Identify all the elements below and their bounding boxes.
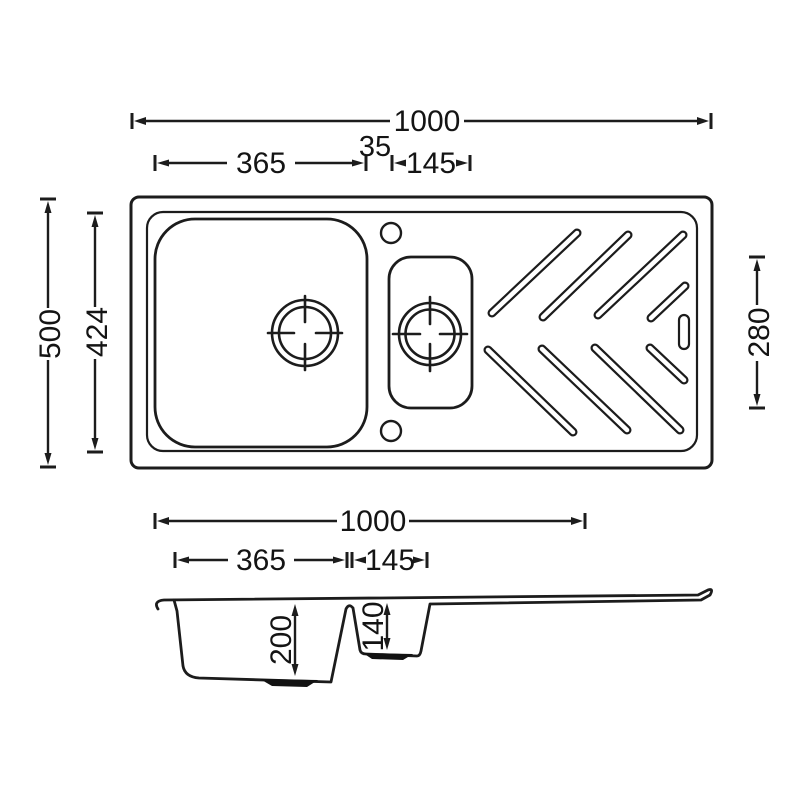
- dim-section-half-bowl-width: 145: [352, 544, 427, 577]
- dim-label-section-200: 200: [265, 615, 298, 665]
- dim-label-plan-500: 500: [34, 309, 67, 359]
- half-bowl-drain-recess: [363, 653, 413, 660]
- dim-plan-main-bowl-width: 365: [155, 147, 366, 180]
- technical-drawing-page: 1000 365 35 145 500 424: [0, 0, 800, 800]
- sink-drawing-canvas: 1000 365 35 145 500 424: [0, 0, 800, 800]
- dim-label-section-365: 365: [236, 544, 286, 577]
- dim-label-plan-424: 424: [81, 307, 114, 357]
- tap-hole-bottom: [381, 421, 401, 441]
- overflow-slot: [679, 315, 689, 349]
- bowls-profile: [174, 600, 430, 682]
- main-bowl-drain-symbol: [268, 296, 342, 370]
- dim-plan-between-bowls: 35: [359, 131, 391, 163]
- section-view: [156, 590, 711, 687]
- dim-section-main-bowl-width: 365: [175, 544, 347, 577]
- main-bowl-drain-recess: [260, 679, 318, 687]
- dim-plan-inner-depth: 424: [81, 213, 114, 452]
- dim-label-section-140: 140: [357, 601, 390, 651]
- dim-plan-half-bowl-length: 280: [743, 257, 776, 408]
- dim-label-plan-145: 145: [406, 147, 456, 180]
- dim-plan-overall-width: 1000: [132, 105, 711, 138]
- drainer-grooves: [488, 233, 685, 432]
- plan-view: [131, 197, 712, 468]
- half-bowl-drain-symbol: [393, 297, 467, 371]
- half-bowl: [389, 257, 472, 408]
- dim-plan-half-bowl-width: 145: [392, 147, 470, 180]
- dim-label-plan-365: 365: [236, 147, 286, 180]
- dim-label-plan-1000: 1000: [394, 105, 461, 138]
- dim-label-plan-35: 35: [359, 131, 391, 163]
- tap-hole-top: [381, 223, 401, 243]
- dim-label-plan-280: 280: [743, 307, 776, 357]
- dim-label-section-1000: 1000: [340, 505, 407, 538]
- dim-section-overall-width: 1000: [155, 505, 585, 538]
- countertop-surface-profile: [156, 590, 711, 609]
- dim-section-main-bowl-depth: 200: [265, 604, 299, 676]
- dim-plan-overall-depth: 500: [34, 199, 67, 467]
- dim-label-section-145: 145: [365, 544, 415, 577]
- dim-section-half-bowl-depth: 140: [357, 601, 391, 651]
